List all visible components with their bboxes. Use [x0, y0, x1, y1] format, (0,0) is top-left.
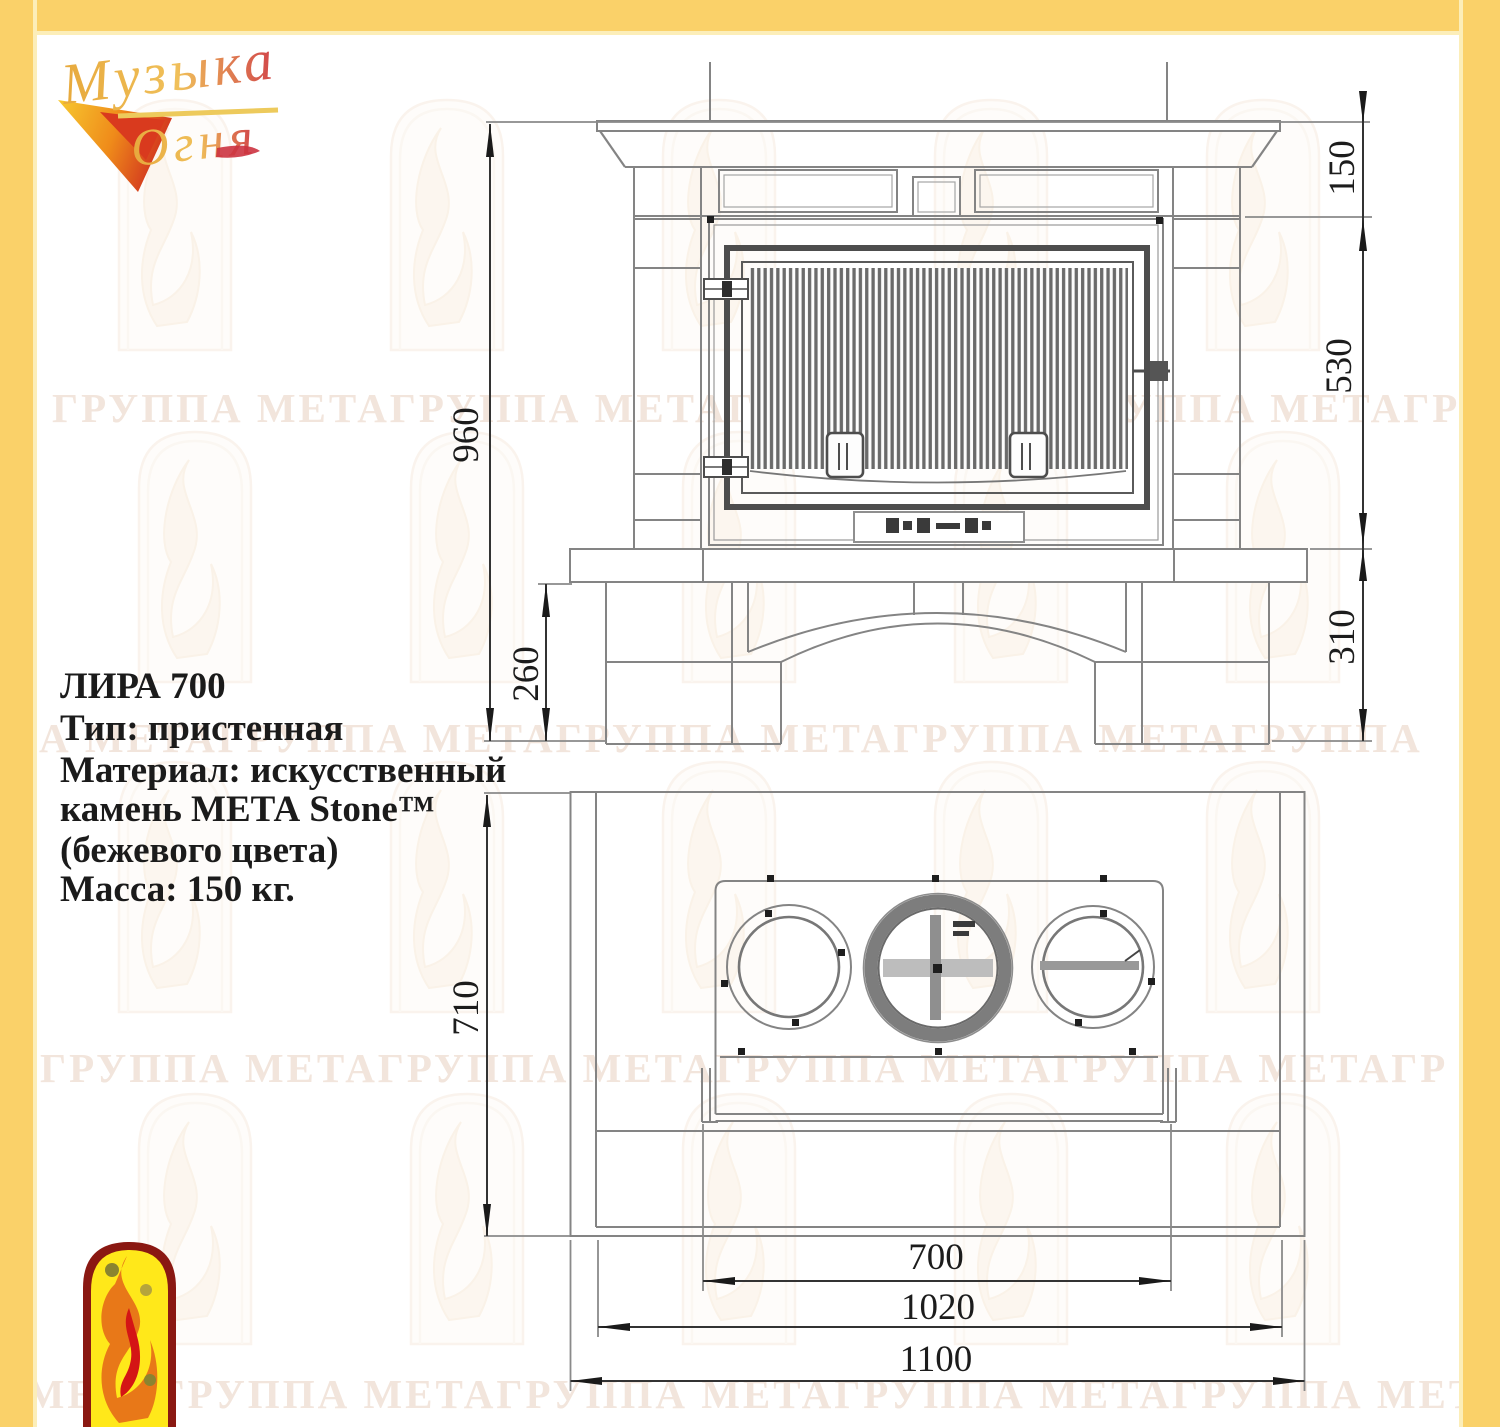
svg-text:камень МЕТА Stone™: камень МЕТА Stone™: [60, 789, 435, 830]
svg-text:150: 150: [1322, 140, 1363, 196]
svg-text:310: 310: [1322, 609, 1363, 665]
svg-text:710: 710: [446, 980, 487, 1036]
svg-text:Материал: искусственный: Материал: искусственный: [60, 750, 506, 791]
svg-text:260: 260: [506, 646, 547, 702]
svg-text:530: 530: [1319, 338, 1360, 394]
svg-text:1020: 1020: [901, 1287, 975, 1328]
svg-text:(бежевого цвета): (бежевого цвета): [60, 830, 339, 871]
svg-text:960: 960: [446, 407, 487, 463]
svg-text:Масса: 150 кг.: Масса: 150 кг.: [60, 869, 295, 910]
svg-text:1100: 1100: [900, 1339, 973, 1380]
svg-text:Тип: пристенная: Тип: пристенная: [60, 708, 343, 749]
svg-text:ЛИРА 700: ЛИРА 700: [60, 666, 226, 707]
svg-text:700: 700: [908, 1237, 964, 1278]
